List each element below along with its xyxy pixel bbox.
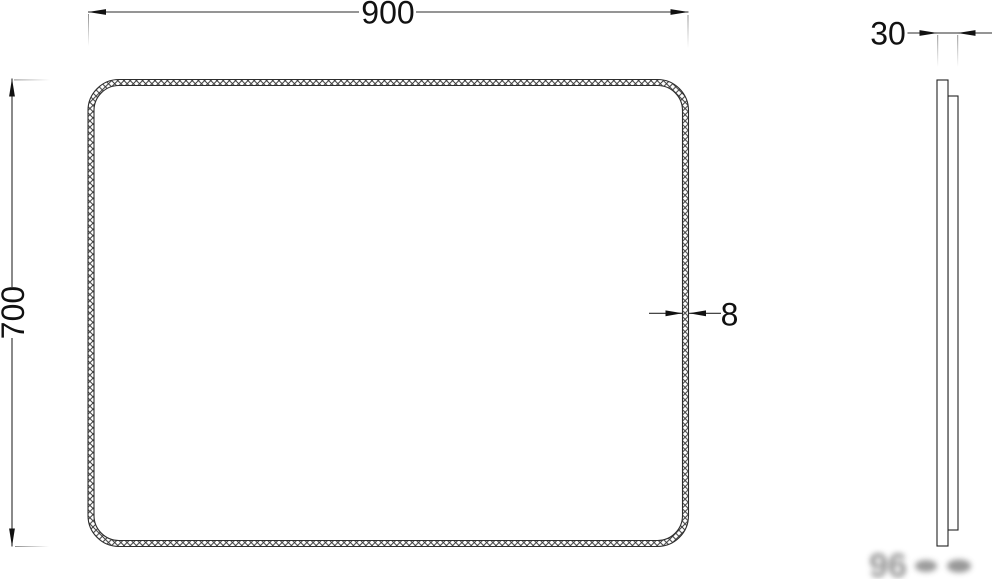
svg-text:8: 8 [721, 297, 739, 333]
svg-text:96: 96 [869, 547, 907, 579]
svg-text:30: 30 [870, 16, 906, 52]
svg-text:700: 700 [0, 286, 31, 339]
svg-text:900: 900 [361, 0, 414, 31]
